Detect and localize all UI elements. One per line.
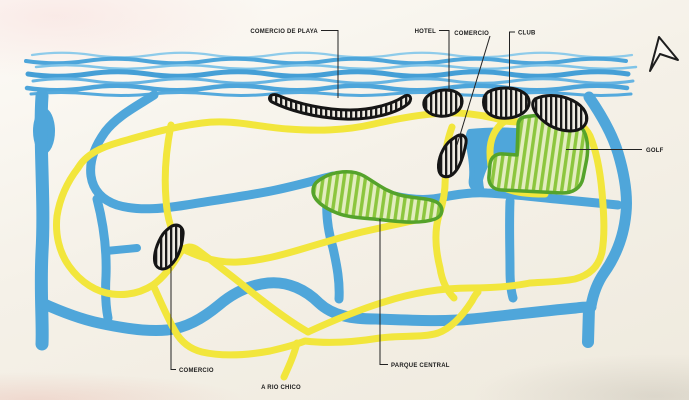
wave-line (31, 93, 631, 96)
label-parque-central: PARQUE CENTRAL (391, 363, 450, 369)
wave-line (26, 59, 626, 64)
wave-line (33, 79, 633, 84)
road-east-stub (588, 308, 589, 342)
wave-line (28, 72, 628, 77)
building-area-hotel (424, 90, 462, 116)
lagoon-connector (479, 165, 481, 193)
building-area-club-west (484, 88, 530, 118)
building-area-comercio-west (154, 225, 183, 269)
label-comercio-top: COMERCIO (454, 31, 489, 37)
wave-line (27, 86, 627, 91)
site-plan-map: COMERCIO DE PLAYA HOTEL COMERCIO CLUB GO… (0, 0, 689, 400)
building-area-comercio-center (438, 135, 466, 177)
sea-waves (26, 53, 636, 96)
label-golf: GOLF (646, 148, 664, 154)
wave-line (36, 65, 636, 69)
label-hotel: HOTEL (415, 29, 437, 35)
label-comercio-west: COMERCIO (179, 368, 214, 374)
central-park-area (313, 172, 442, 222)
map-canvas: COMERCIO DE PLAYA HOTEL COMERCIO CLUB GO… (0, 0, 689, 400)
river-branch-southwest (97, 199, 108, 318)
north-arrow-icon (650, 37, 678, 71)
label-comercio-de-playa: COMERCIO DE PLAYA (250, 29, 318, 35)
leader-parque-central (380, 219, 388, 365)
label-a-rio-chico: A RIO CHICO (261, 385, 301, 391)
building-area-comercio-de-playa (270, 95, 411, 119)
river-branch-spur (106, 248, 137, 251)
wave-line (32, 53, 632, 58)
label-club: CLUB (518, 31, 536, 37)
